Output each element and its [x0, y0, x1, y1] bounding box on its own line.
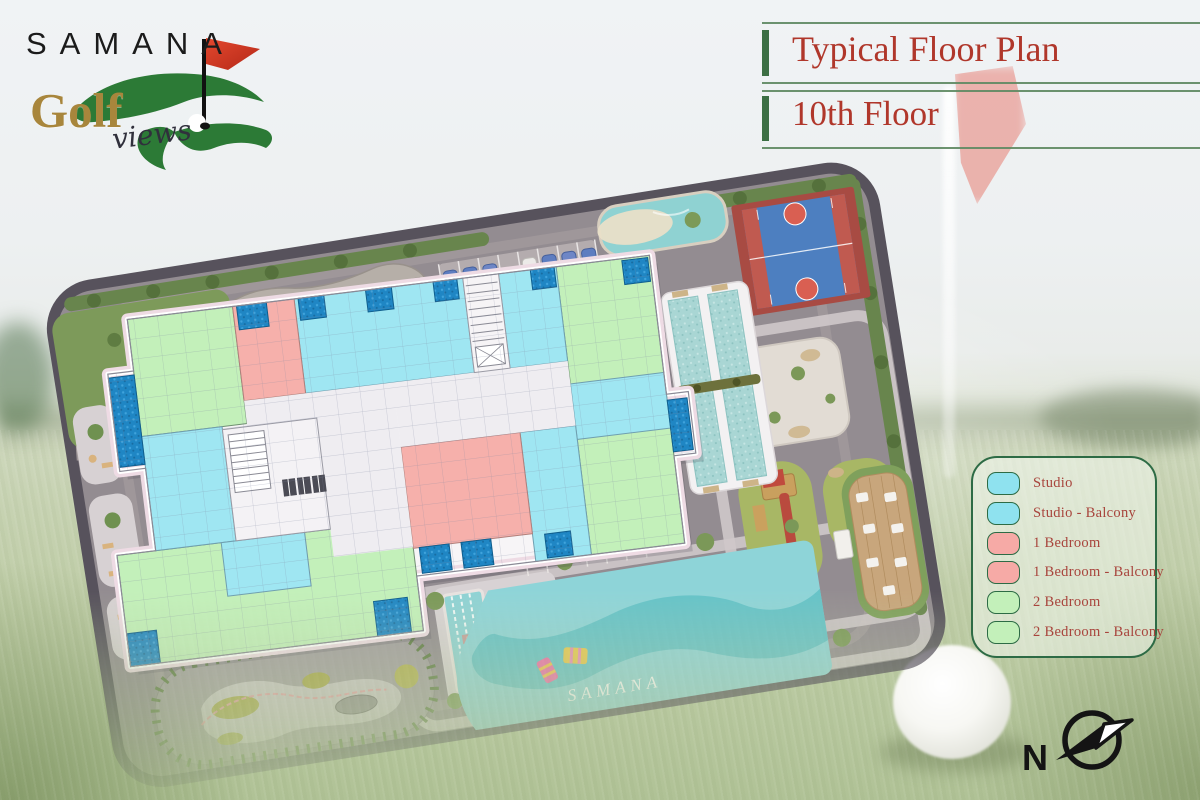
legend-item-1-bedroom-balcony: 1 Bedroom - Balcony: [987, 559, 1155, 586]
studio-swatch: [987, 472, 1020, 495]
title-accent-bar: [762, 30, 769, 76]
two-bedroom-balcony-swatch: [987, 621, 1020, 644]
legend-label: 1 Bedroom - Balcony: [1033, 564, 1164, 581]
legend-label: 2 Bedroom: [1033, 594, 1101, 611]
brand-logo: SAMANA Golf views: [16, 14, 286, 174]
legend-label: 1 Bedroom: [1033, 535, 1101, 552]
page-title: Typical Floor Plan: [792, 28, 1059, 70]
subtitle-accent-bar: [762, 96, 769, 141]
north-label: N: [1022, 737, 1048, 778]
one-bedroom-swatch: [987, 532, 1020, 555]
title-block: Typical Floor Plan 10th Floor: [760, 0, 1200, 160]
unit-type-legend: Studio Studio - Balcony 1 Bedroom 1 Bedr…: [971, 456, 1157, 658]
divider-line: [762, 22, 1200, 24]
legend-item-studio-balcony: Studio - Balcony: [987, 500, 1155, 527]
legend-label: 2 Bedroom - Balcony: [1033, 624, 1164, 641]
legend-item-2-bedroom-balcony: 2 Bedroom - Balcony: [987, 619, 1155, 646]
legend-label: Studio: [1033, 475, 1073, 492]
one-bedroom-balcony-swatch: [987, 561, 1020, 584]
divider-line: [762, 82, 1200, 84]
divider-line: [762, 90, 1200, 92]
studio-balcony-swatch: [987, 502, 1020, 525]
divider-line: [762, 147, 1200, 149]
logo-brand-text: SAMANA: [26, 26, 235, 62]
legend-item-2-bedroom: 2 Bedroom: [987, 589, 1155, 616]
legend-label: Studio - Balcony: [1033, 505, 1136, 522]
site-plot: SAMANA: [46, 162, 946, 788]
basketball-court: [731, 186, 871, 316]
floor-plan-poster: SAMANA: [0, 0, 1200, 800]
legend-item-studio: Studio: [987, 470, 1155, 497]
legend-item-1-bedroom: 1 Bedroom: [987, 530, 1155, 557]
logo-word-text: Golf: [30, 82, 123, 139]
compass: N: [1000, 690, 1180, 790]
page-subtitle: 10th Floor: [792, 94, 939, 134]
two-bedroom-swatch: [987, 591, 1020, 614]
